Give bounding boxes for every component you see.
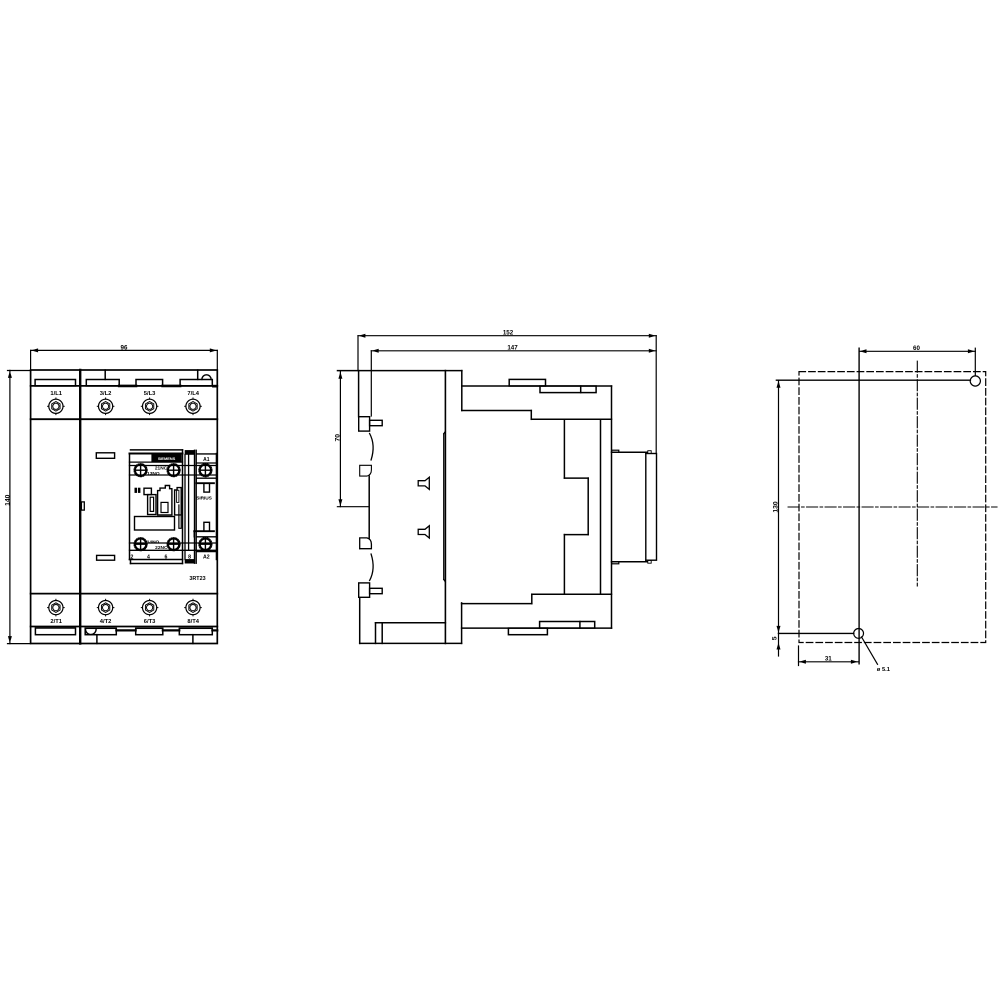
svg-text:6: 6	[165, 554, 168, 560]
svg-text:A1: A1	[203, 457, 210, 463]
svg-text:152: 152	[503, 330, 514, 337]
svg-text:1/L1: 1/L1	[50, 391, 62, 397]
svg-text:13NO: 13NO	[147, 471, 160, 477]
svg-text:5/L3: 5/L3	[144, 391, 156, 397]
svg-text:2/T1: 2/T1	[50, 619, 62, 625]
svg-text:96: 96	[121, 344, 128, 351]
svg-text:ø 5.1: ø 5.1	[877, 667, 891, 673]
svg-text:2: 2	[130, 554, 133, 560]
svg-text:31: 31	[825, 656, 832, 663]
svg-text:3/L2: 3/L2	[100, 391, 112, 397]
svg-text:A2: A2	[203, 554, 210, 560]
svg-text:60: 60	[913, 345, 920, 352]
svg-text:SIRIUS: SIRIUS	[196, 496, 212, 502]
svg-text:6/T3: 6/T3	[144, 619, 156, 625]
svg-text:70: 70	[335, 434, 342, 442]
svg-text:140: 140	[5, 494, 12, 506]
svg-text:7/L4: 7/L4	[187, 391, 199, 397]
svg-text:3RT23: 3RT23	[189, 576, 205, 582]
svg-text:14NO: 14NO	[147, 539, 160, 545]
svg-text:8/T4: 8/T4	[187, 619, 199, 625]
svg-text:147: 147	[507, 345, 518, 352]
svg-text:SIEMENS: SIEMENS	[158, 456, 176, 461]
svg-text:21NC: 21NC	[155, 465, 168, 471]
svg-text:4/T2: 4/T2	[100, 619, 112, 625]
svg-text:4: 4	[147, 554, 150, 560]
svg-text:130: 130	[772, 501, 779, 513]
svg-text:5: 5	[772, 636, 779, 640]
